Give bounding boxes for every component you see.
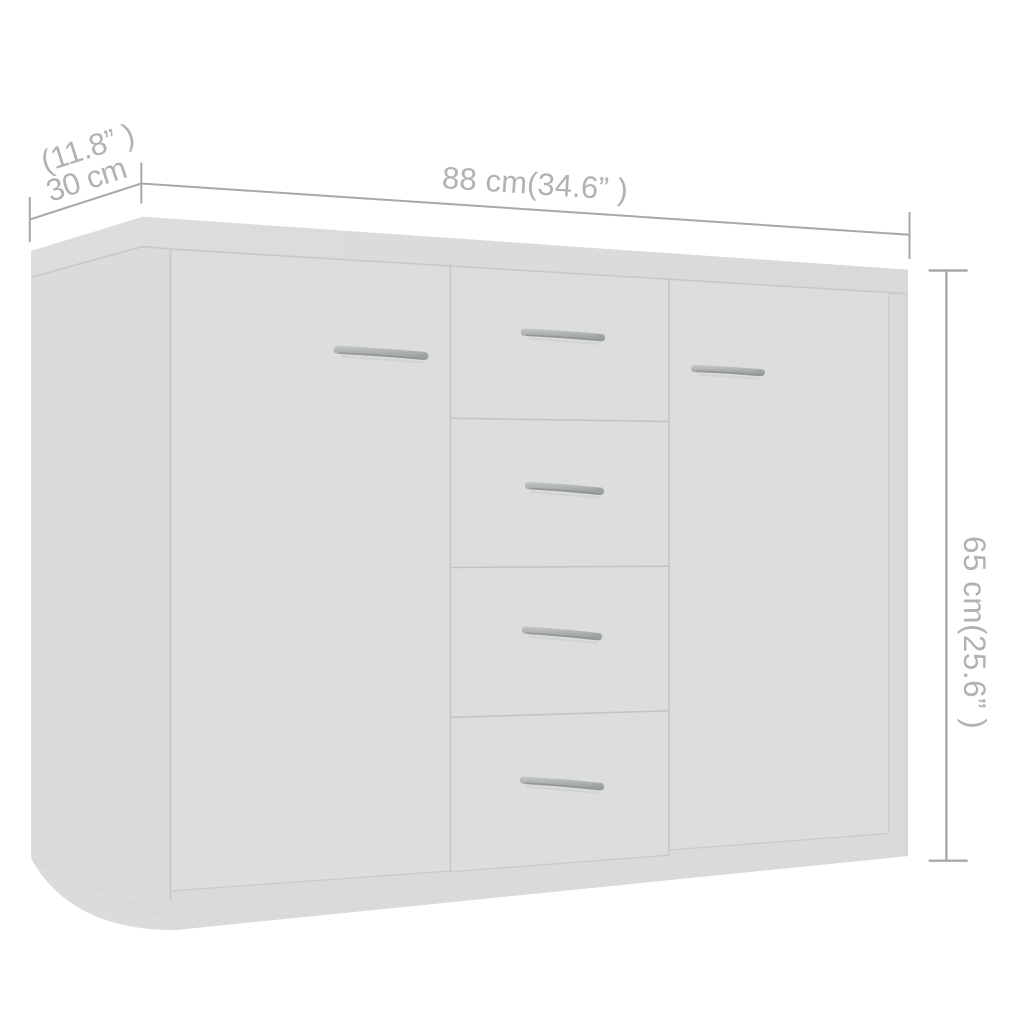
svg-text:65 cm(25.6” ): 65 cm(25.6” ) [957, 536, 992, 729]
